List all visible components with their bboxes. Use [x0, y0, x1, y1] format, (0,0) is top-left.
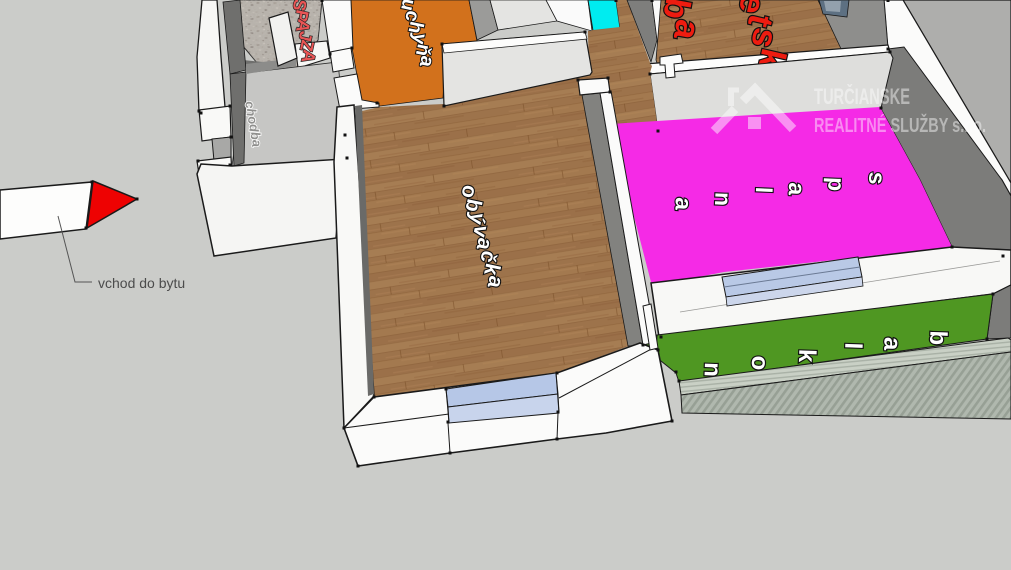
svg-text:REALITNÉ SLUŽBY s.r.o.: REALITNÉ SLUŽBY s.r.o. — [814, 113, 986, 137]
svg-text:TURČIANSKE: TURČIANSKE — [814, 84, 910, 109]
svg-text:vchod do bytu: vchod do bytu — [98, 275, 185, 291]
